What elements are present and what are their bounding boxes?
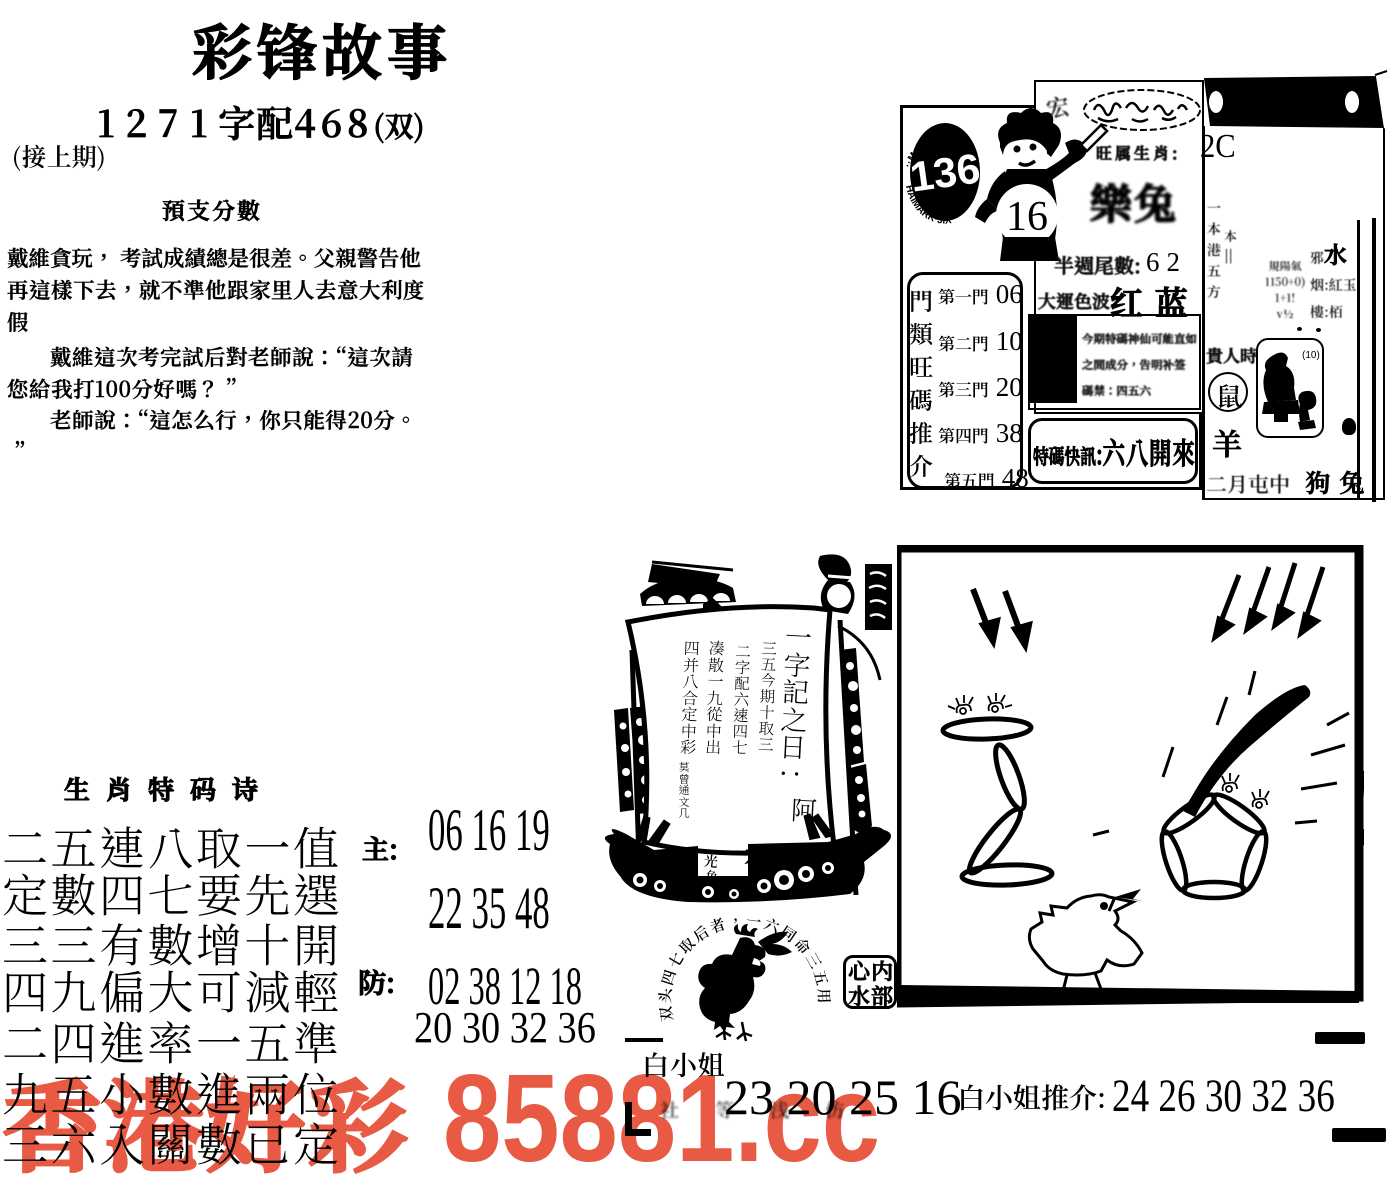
svg-text:(10): (10) bbox=[1302, 350, 1320, 361]
svg-text:16: 16 bbox=[1006, 194, 1048, 240]
